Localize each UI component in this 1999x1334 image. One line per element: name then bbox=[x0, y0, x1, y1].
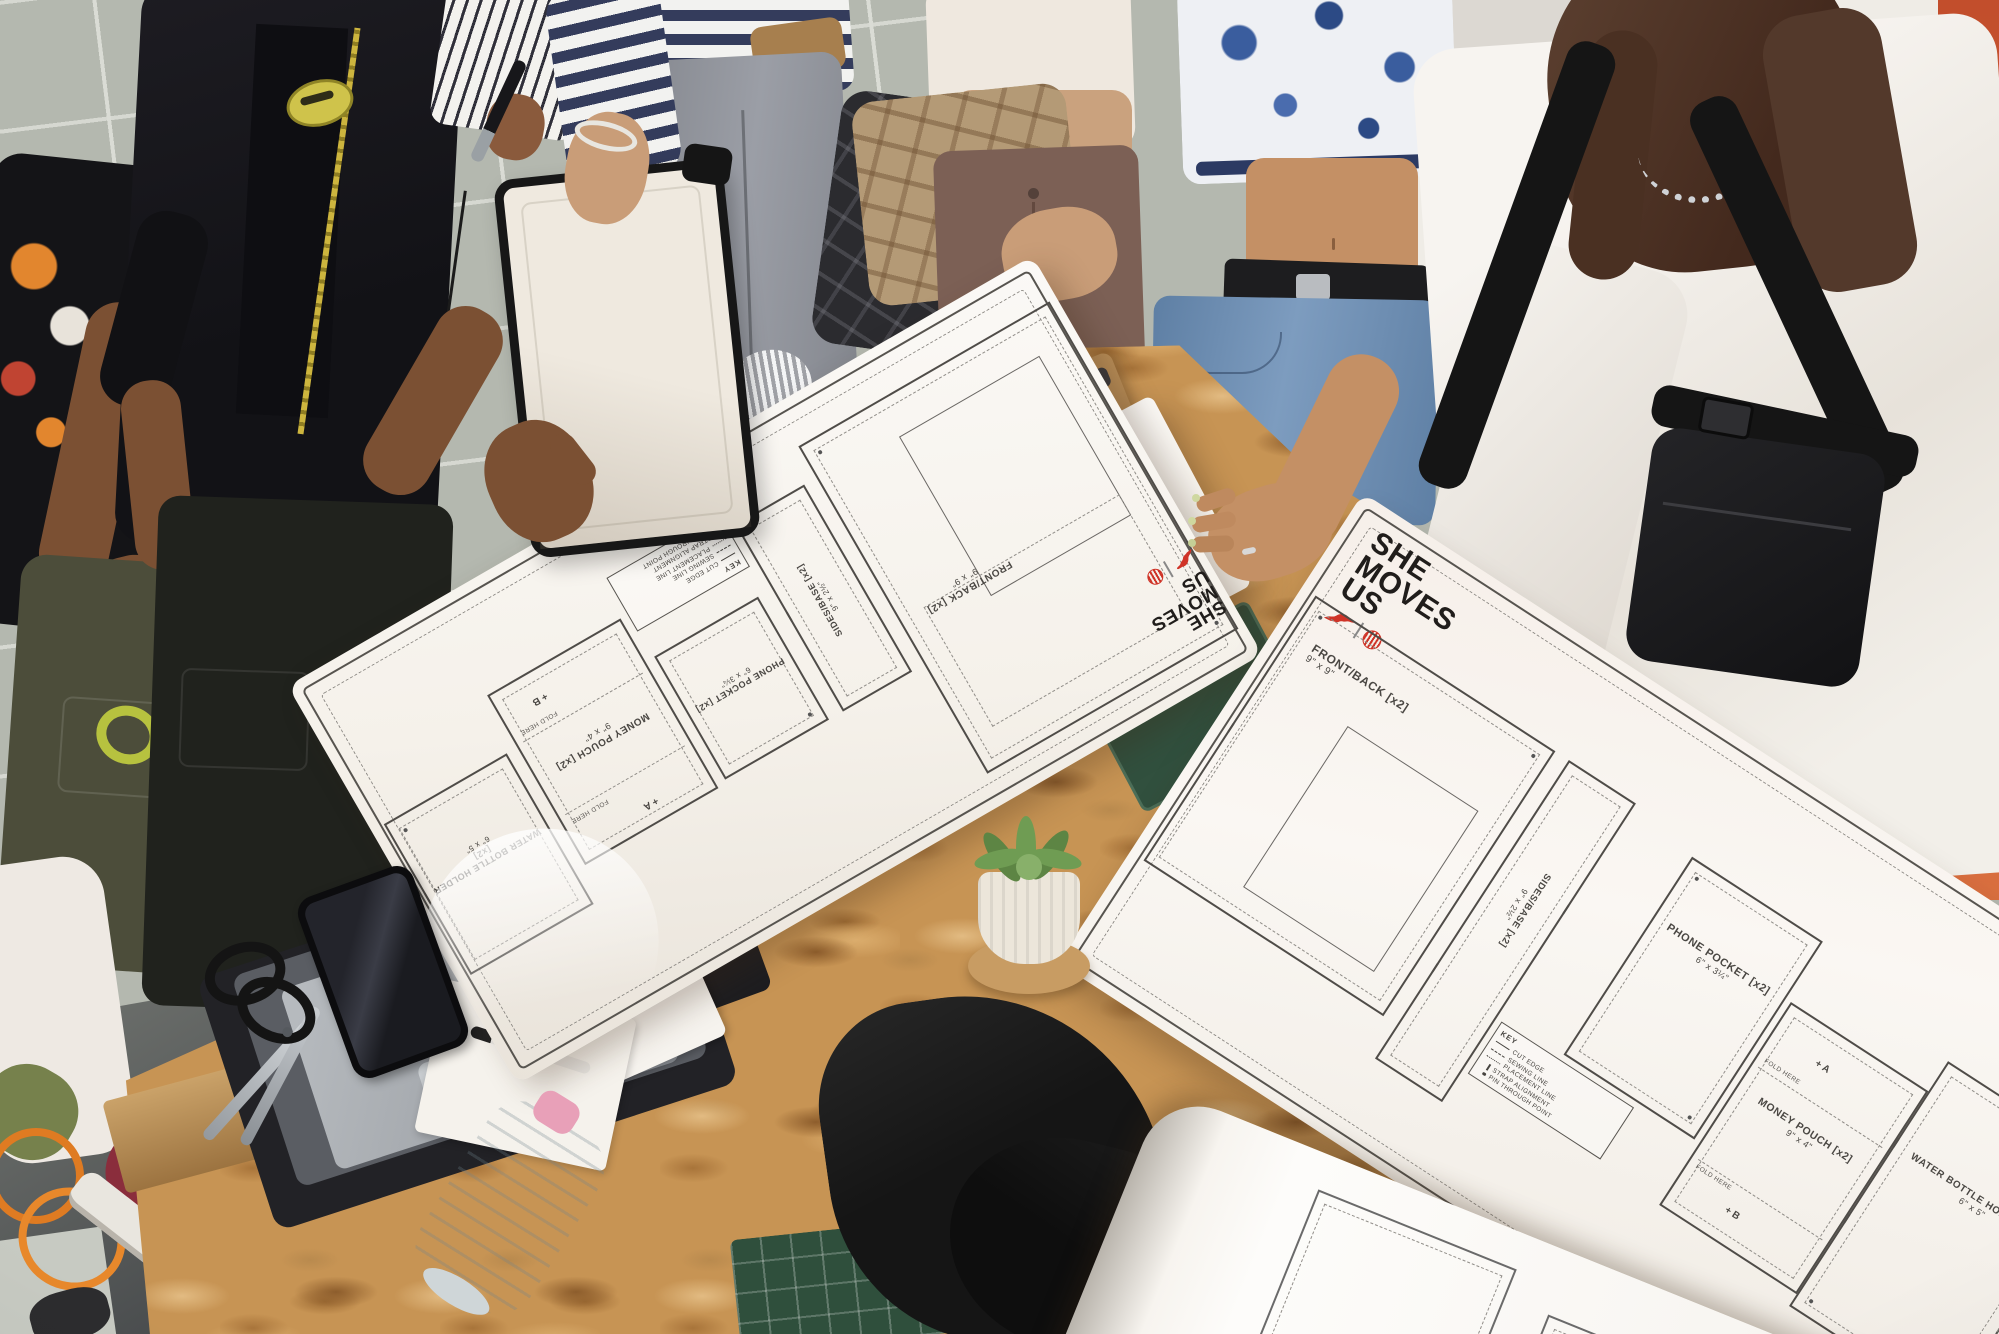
piece-size: 6" x 5" bbox=[1887, 1150, 1999, 1265]
pin-point bbox=[1808, 1298, 1814, 1304]
piece-label: FRONT/BACK [x2] 9" x 9" bbox=[1303, 642, 1411, 725]
fingernail-green bbox=[1188, 539, 1196, 547]
mark-a: + A bbox=[641, 795, 660, 812]
piece-label: PHONE POCKET [x2] 6" x 3¼" bbox=[1646, 913, 1785, 1014]
fingernail-green bbox=[1192, 494, 1200, 502]
piece-title: PHONE POCKET [x2] bbox=[1651, 913, 1785, 1006]
pin-point bbox=[1318, 615, 1324, 621]
piece-size: 6" x 3¼" bbox=[683, 644, 788, 710]
fold-here-label: FOLD HERE bbox=[570, 798, 610, 825]
potted-plant bbox=[950, 810, 1110, 1000]
pin-point bbox=[1694, 876, 1700, 882]
tick-mark-icon bbox=[1486, 1063, 1491, 1070]
pin-point bbox=[817, 450, 822, 455]
piece-label: MONEY POUCH [x2] 9" x 4" bbox=[530, 690, 670, 783]
piece-label: SIDES/BASE [x2] 9" x 2½" bbox=[795, 558, 852, 639]
fold-line bbox=[1698, 1159, 1823, 1240]
fingernail-green bbox=[1188, 517, 1196, 525]
chest-rig-pouch bbox=[1623, 425, 1888, 690]
navel bbox=[1332, 238, 1335, 250]
pin-point bbox=[1531, 753, 1537, 759]
dot-mark-icon bbox=[1482, 1071, 1487, 1076]
mark-b: + B bbox=[1722, 1205, 1741, 1223]
pin-point bbox=[1687, 1115, 1693, 1121]
piece-label: MONEY POUCH [x2] 9" x 4" bbox=[1729, 1082, 1875, 1188]
mark-a: + A bbox=[1813, 1058, 1832, 1076]
workshop-photo: SHE FRONT/BACK [x2] 9" x 9" WATER BOTTLE… bbox=[0, 0, 1999, 1334]
scissors bbox=[177, 937, 377, 1188]
piece-label: SIDES/BASE [x2] 9" x 2½" bbox=[1489, 866, 1553, 950]
finger bbox=[1192, 535, 1235, 552]
pin-point bbox=[403, 827, 408, 832]
pin-point bbox=[807, 712, 812, 717]
rolled-sheet-piece bbox=[1204, 1189, 1516, 1334]
piece-title: PHONE POCKET [x2] bbox=[687, 652, 792, 719]
piece-label: PHONE POCKET [x2] 6" x 3¼" bbox=[683, 644, 793, 718]
piece-size: 9" x 4" bbox=[530, 690, 665, 774]
plant-pot bbox=[978, 872, 1080, 964]
piece-label: WATER BOTTLE HOLDER [x2] 6" x 5" bbox=[1887, 1141, 1999, 1265]
trouser-pocket bbox=[178, 668, 310, 771]
piece-title: FRONT/BACK [x2] bbox=[1309, 642, 1411, 715]
mark-b: + B bbox=[530, 690, 549, 707]
succulent-center bbox=[1016, 854, 1042, 880]
belt-buckle bbox=[1296, 274, 1330, 300]
trouser-button bbox=[1028, 188, 1039, 199]
pouch-strap-tab bbox=[681, 142, 734, 186]
piece-size: 9" x 4" bbox=[1729, 1092, 1869, 1188]
piece-title: WATER BOTTLE HOLDER [x2] bbox=[1893, 1141, 1999, 1257]
piece-size: 6" x 3¼" bbox=[1646, 923, 1779, 1014]
